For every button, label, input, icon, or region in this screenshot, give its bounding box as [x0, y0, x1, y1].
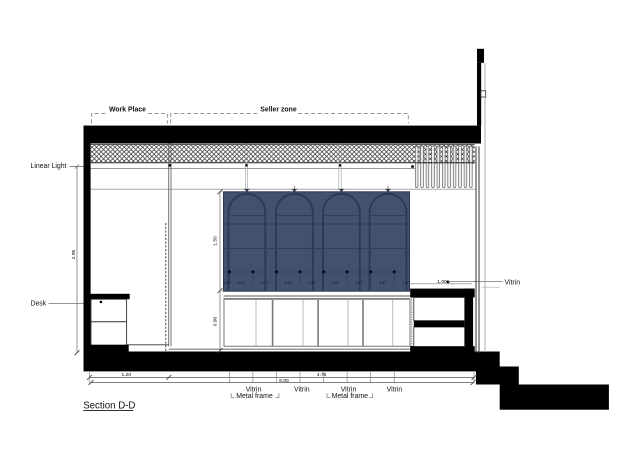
svg-text:Section D-D: Section D-D [83, 400, 135, 411]
svg-text:Work Place: Work Place [109, 106, 146, 113]
svg-text:Metal frame: Metal frame [332, 393, 369, 400]
svg-text:0.03: 0.03 [223, 281, 230, 285]
svg-text:Vitrin: Vitrin [294, 387, 310, 394]
svg-text:1.00: 1.00 [437, 279, 447, 285]
svg-text:2.95: 2.95 [71, 249, 77, 259]
svg-text:0.57: 0.57 [238, 281, 245, 285]
svg-text:1.50: 1.50 [213, 236, 219, 246]
svg-text:6.00: 6.00 [279, 378, 289, 384]
svg-text:0.57: 0.57 [332, 281, 339, 285]
svg-text:4.78: 4.78 [317, 372, 327, 378]
svg-text:0.90: 0.90 [213, 316, 219, 326]
svg-text:0.17: 0.17 [356, 281, 363, 285]
svg-text:1.20: 1.20 [122, 372, 132, 378]
svg-text:0.17: 0.17 [261, 281, 268, 285]
svg-text:0.57: 0.57 [379, 281, 386, 285]
svg-text:0.03: 0.03 [403, 281, 410, 285]
svg-text:Desk: Desk [31, 301, 47, 308]
svg-text:Vitrin: Vitrin [387, 387, 403, 394]
svg-text:Vitrin: Vitrin [505, 279, 521, 286]
svg-text:Metal frame: Metal frame [236, 393, 273, 400]
svg-text:0.17: 0.17 [308, 281, 315, 285]
svg-text:Seller zone: Seller zone [260, 106, 297, 113]
svg-text:Linear Light: Linear Light [31, 163, 67, 170]
svg-text:0.57: 0.57 [285, 281, 292, 285]
